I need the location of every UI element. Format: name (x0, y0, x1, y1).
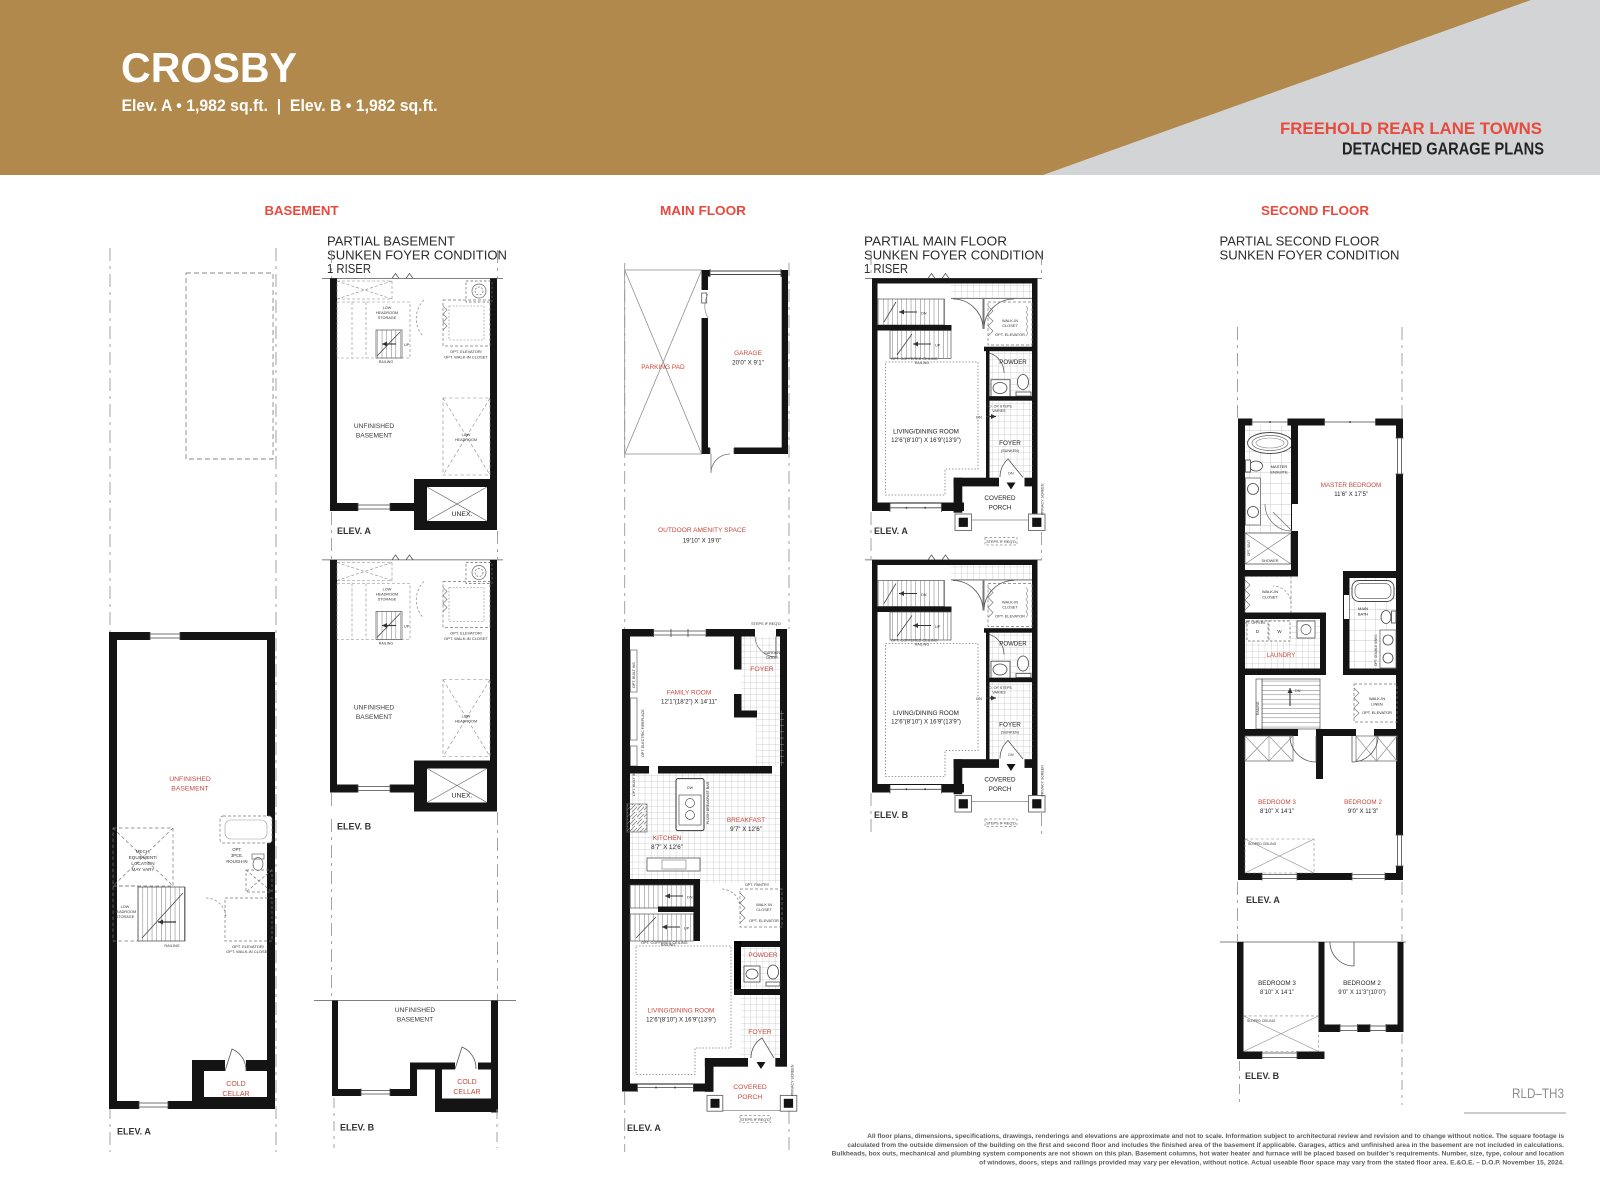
svg-text:DN: DN (976, 416, 982, 420)
svg-text:DOOR: DOOR (766, 656, 778, 660)
svg-text:PRIVACY SCREEN: PRIVACY SCREEN (791, 1064, 795, 1096)
svg-text:MAIN FLOOR: MAIN FLOOR (660, 203, 746, 218)
svg-text:ELEV. A: ELEV. A (1246, 895, 1280, 905)
svg-text:STORAGE: STORAGE (378, 316, 397, 320)
svg-text:RAILING: RAILING (164, 944, 179, 948)
svg-text:COLD: COLD (457, 1079, 476, 1086)
svg-text:LIVING/DINING ROOM: LIVING/DINING ROOM (648, 1008, 715, 1015)
svg-text:9’0” X 11’3”: 9’0” X 11’3” (1348, 809, 1378, 815)
svg-text:BASEMENT: BASEMENT (356, 433, 392, 440)
svg-text:DN: DN (1008, 472, 1014, 476)
svg-text:OPT. BUILT INS: OPT. BUILT INS (632, 662, 636, 688)
svg-text:DN: DN (687, 896, 693, 900)
svg-text:ELEV. B: ELEV. B (1245, 1071, 1280, 1081)
svg-text:8’7” X 12’6”: 8’7” X 12’6” (651, 844, 683, 851)
svg-text:DN: DN (921, 312, 927, 316)
svg-text:OPT. DOUBLE SINKS: OPT. DOUBLE SINKS (1374, 634, 1378, 666)
svg-text:HEADROOM: HEADROOM (114, 910, 136, 914)
svg-text:9’7” X 12’6”: 9’7” X 12’6” (730, 826, 762, 833)
svg-text:12’6”(8’10”) X 16’9”(13’9”): 12’6”(8’10”) X 16’9”(13’9”) (891, 437, 961, 444)
svg-text:UP: UP (684, 927, 690, 931)
svg-text:ELEV. B: ELEV. B (340, 1123, 375, 1133)
svg-text:SLOPED CEILING: SLOPED CEILING (1247, 1019, 1276, 1023)
svg-text:MASTER: MASTER (1271, 464, 1288, 469)
svg-text:DW: DW (687, 786, 694, 790)
svg-text:ENSUITE: ENSUITE (1270, 470, 1288, 475)
svg-text:ELEV. B: ELEV. B (874, 810, 909, 820)
svg-text:DN: DN (1295, 689, 1301, 693)
svg-text:CELLAR: CELLAR (222, 1091, 249, 1098)
svg-text:WALK-IN: WALK-IN (1262, 589, 1278, 594)
svg-text:BASEMENT: BASEMENT (397, 1017, 433, 1024)
svg-text:11’6” X 17’5”: 11’6” X 17’5” (1334, 492, 1368, 498)
svg-text:OPT. ELECTRIC FIREPLACE: OPT. ELECTRIC FIREPLACE (641, 709, 645, 757)
svg-text:PARTIAL SECOND FLOOR: PARTIAL SECOND FLOOR (1220, 234, 1380, 249)
svg-text:OPT. WALK-IN CLOSET: OPT. WALK-IN CLOSET (226, 949, 270, 954)
svg-text:RAILING: RAILING (1256, 701, 1260, 715)
svg-text:STORAGE: STORAGE (116, 915, 135, 919)
svg-text:MAIN: MAIN (1358, 606, 1368, 611)
svg-text:8’10” X 14’1”: 8’10” X 14’1” (1260, 990, 1294, 996)
svg-text:OPT. COFFERED CEILING: OPT. COFFERED CEILING (891, 357, 938, 361)
svg-text:CLOSET: CLOSET (756, 907, 772, 912)
svg-text:GARAGE: GARAGE (734, 350, 762, 357)
svg-text:CLOSET: CLOSET (1262, 595, 1278, 600)
svg-text:RLD–TH3: RLD–TH3 (1512, 1086, 1564, 1101)
svg-text:BEDROOM 3: BEDROOM 3 (1258, 980, 1296, 987)
svg-text:12’6”(8’10”) X 16’9”(13’9”): 12’6”(8’10”) X 16’9”(13’9”) (646, 1017, 716, 1024)
svg-text:19’10” X 19’0”: 19’10” X 19’0” (683, 538, 722, 545)
svg-text:PARTIAL BASEMENT: PARTIAL BASEMENT (327, 234, 455, 249)
svg-text:of windows, doors, steps and r: of windows, doors, steps and railings pr… (979, 1159, 1564, 1166)
svg-text:KITCHEN: KITCHEN (653, 835, 682, 842)
svg-text:OUTDOOR AMENITY SPACE: OUTDOOR AMENITY SPACE (658, 527, 747, 534)
svg-text:STEPS IF REQ’D: STEPS IF REQ’D (740, 1118, 770, 1122)
svg-text:NO. OF STEPS: NO. OF STEPS (986, 405, 1012, 409)
svg-text:(SUNKEN): (SUNKEN) (1001, 449, 1020, 453)
svg-text:LINEN: LINEN (1371, 702, 1383, 707)
svg-text:DETACHED GARAGE PLANS: DETACHED GARAGE PLANS (1342, 139, 1544, 159)
svg-text:COVERED: COVERED (733, 1084, 767, 1091)
svg-text:SUNKEN FOYER CONDITION: SUNKEN FOYER CONDITION (1220, 247, 1400, 262)
svg-text:SHOWER: SHOWER (1261, 559, 1278, 563)
svg-text:FAMILY ROOM: FAMILY ROOM (667, 690, 712, 697)
svg-text:OPT. SEAT: OPT. SEAT (1247, 540, 1251, 556)
svg-text:1 RISER: 1 RISER (327, 261, 371, 276)
svg-text:BEDROOM 3: BEDROOM 3 (1258, 799, 1296, 806)
svg-text:POWDER: POWDER (748, 952, 778, 959)
svg-text:POWDER: POWDER (999, 359, 1027, 366)
svg-text:9’0” X 11’3”(10’0”): 9’0” X 11’3”(10’0”) (1338, 990, 1386, 996)
svg-text:FOYER: FOYER (999, 440, 1021, 447)
svg-text:ELEV. A: ELEV. A (117, 1127, 151, 1137)
svg-text:WALK-IN: WALK-IN (1369, 696, 1385, 701)
svg-text:COVERED: COVERED (984, 495, 1016, 502)
svg-text:OPT. ELEVATOR: OPT. ELEVATOR (1362, 710, 1392, 715)
svg-text:UNEX.: UNEX. (452, 511, 473, 518)
svg-text:CLOSET: CLOSET (1002, 323, 1018, 328)
svg-text:ELEV. A: ELEV. A (874, 526, 908, 536)
svg-text:LOW: LOW (121, 905, 130, 909)
svg-text:PRIVACY SCREEN: PRIVACY SCREEN (1041, 483, 1045, 515)
svg-text:OPT. ELEVATOR: OPT. ELEVATOR (749, 918, 779, 923)
svg-text:ELEV. A: ELEV. A (337, 526, 371, 536)
svg-text:UP: UP (404, 343, 410, 347)
svg-text:UNFINISHED: UNFINISHED (354, 423, 395, 430)
svg-text:3PCE.: 3PCE. (231, 853, 243, 858)
svg-text:LOW: LOW (383, 306, 392, 310)
svg-text:UP: UP (935, 344, 941, 348)
svg-text:LIVING/DINING ROOM: LIVING/DINING ROOM (893, 429, 959, 436)
svg-text:BASEMENT: BASEMENT (265, 203, 339, 218)
svg-text:20’0” X 9’1”: 20’0” X 9’1” (732, 360, 764, 367)
svg-text:8’10” X 14’1”: 8’10” X 14’1” (1260, 809, 1294, 815)
svg-text:LOCATION: LOCATION (131, 861, 154, 866)
svg-text:ELEV. B: ELEV. B (337, 822, 372, 832)
svg-text:FOYER: FOYER (750, 666, 774, 673)
svg-text:Bulkheads, box outs, mechanica: Bulkheads, box outs, mechanical and plum… (832, 1151, 1564, 1158)
svg-text:VARIES: VARIES (992, 409, 1006, 413)
svg-text:OPT. WALK-IN CLOSET: OPT. WALK-IN CLOSET (444, 355, 488, 360)
svg-text:STEPS IF REQ’D: STEPS IF REQ’D (986, 540, 1016, 544)
svg-text:LAUNDRY: LAUNDRY (1267, 653, 1296, 659)
svg-text:BEDROOM 2: BEDROOM 2 (1343, 980, 1381, 987)
svg-text:OPT.: OPT. (232, 847, 241, 852)
svg-text:MECH.: MECH. (136, 849, 151, 854)
svg-text:FLUSH BREAKFAST BAR: FLUSH BREAKFAST BAR (706, 781, 710, 824)
svg-text:HEADROOM: HEADROOM (455, 438, 477, 442)
svg-text:FOYER: FOYER (748, 1029, 772, 1036)
svg-text:MAY VARY: MAY VARY (132, 867, 155, 872)
svg-text:ROUGH-IN: ROUGH-IN (226, 859, 247, 864)
svg-text:MASTER BEDROOM: MASTER BEDROOM (1321, 482, 1382, 489)
svg-text:SECOND FLOOR: SECOND FLOOR (1261, 203, 1369, 218)
svg-text:BEDROOM 2: BEDROOM 2 (1344, 799, 1382, 806)
svg-text:calculated from the outside di: calculated from the outside dimension of… (847, 1142, 1564, 1149)
svg-text:UNFINISHED: UNFINISHED (395, 1007, 436, 1014)
svg-text:OPT. COFFERED CEILING: OPT. COFFERED CEILING (641, 941, 688, 945)
svg-text:PARKING PAD: PARKING PAD (641, 364, 685, 371)
svg-text:PORCH: PORCH (989, 505, 1012, 512)
svg-text:All floor plans, dimensions, s: All floor plans, dimensions, specificati… (867, 1133, 1564, 1140)
svg-text:PARTIAL MAIN FLOOR: PARTIAL MAIN FLOOR (864, 234, 1007, 249)
svg-text:BASEMENT: BASEMENT (171, 786, 208, 793)
svg-text:OPT. ELEVATOR/: OPT. ELEVATOR/ (450, 349, 483, 354)
svg-text:GARDEN: GARDEN (764, 651, 781, 655)
svg-text:SUNKEN FOYER CONDITION: SUNKEN FOYER CONDITION (327, 247, 507, 262)
svg-text:EQUIPMENT/: EQUIPMENT/ (129, 855, 158, 860)
svg-text:CROSBY: CROSBY (121, 44, 297, 91)
svg-text:OPT. ELEVATOR: OPT. ELEVATOR (995, 332, 1025, 337)
svg-text:OPT. PANTRY: OPT. PANTRY (745, 883, 770, 887)
svg-text:STEPS IF REQ’D: STEPS IF REQ’D (751, 622, 781, 626)
svg-text:BREAKFAST: BREAKFAST (727, 817, 765, 824)
svg-text:Elev. A • 1,982 sq.ft. | Ele: Elev. A • 1,982 sq.ft. | Elev. B • 1,982… (122, 96, 438, 115)
svg-text:RAILING: RAILING (379, 360, 394, 364)
svg-text:CELLAR: CELLAR (453, 1089, 480, 1096)
svg-text:SLOPED CEILING: SLOPED CEILING (1248, 842, 1277, 846)
svg-text:BATH: BATH (1358, 612, 1368, 617)
svg-text:PORCH: PORCH (738, 1094, 763, 1101)
svg-text:HEADROOM: HEADROOM (376, 311, 398, 315)
svg-text:ELEV. A: ELEV. A (627, 1123, 661, 1133)
svg-text:UNFINISHED: UNFINISHED (169, 776, 211, 783)
svg-text:12’1”(18’2”) X 14’11”: 12’1”(18’2”) X 14’11” (661, 699, 717, 706)
svg-text:OPT. UPPERS: OPT. UPPERS (1243, 621, 1266, 625)
svg-text:SUNKEN FOYER CONDITION: SUNKEN FOYER CONDITION (864, 247, 1044, 262)
svg-text:LOW: LOW (462, 433, 471, 437)
svg-text:COLD: COLD (226, 1081, 245, 1088)
svg-text:FREEHOLD REAR LANE TOWNS: FREEHOLD REAR LANE TOWNS (1280, 119, 1542, 138)
